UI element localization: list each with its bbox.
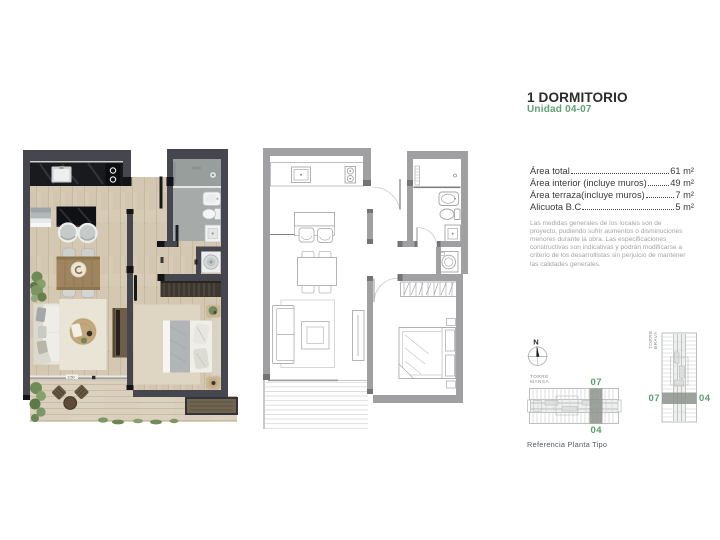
- svg-text:3.50: 3.50: [68, 375, 75, 379]
- svg-text:N: N: [533, 338, 538, 347]
